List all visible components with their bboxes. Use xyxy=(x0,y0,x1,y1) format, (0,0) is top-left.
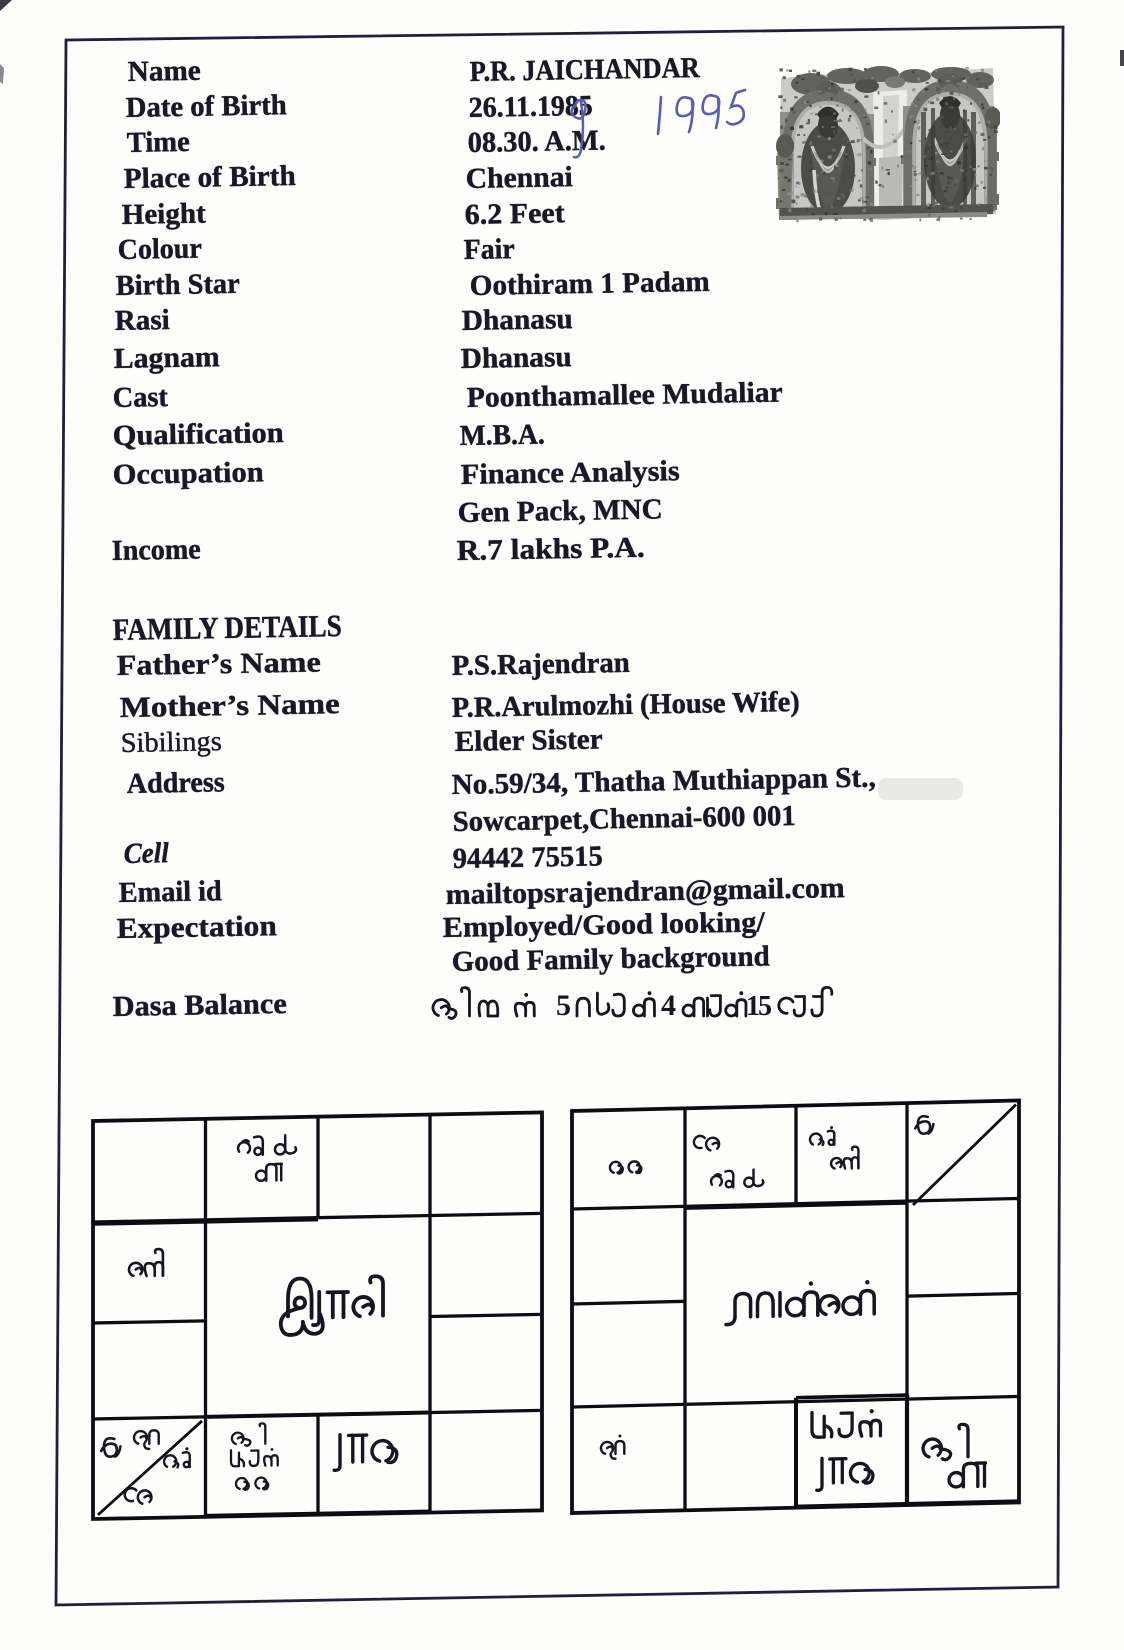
svg-text:15: 15 xyxy=(746,991,771,1022)
svg-text:4: 4 xyxy=(661,989,676,1022)
svg-text:5: 5 xyxy=(556,989,571,1022)
